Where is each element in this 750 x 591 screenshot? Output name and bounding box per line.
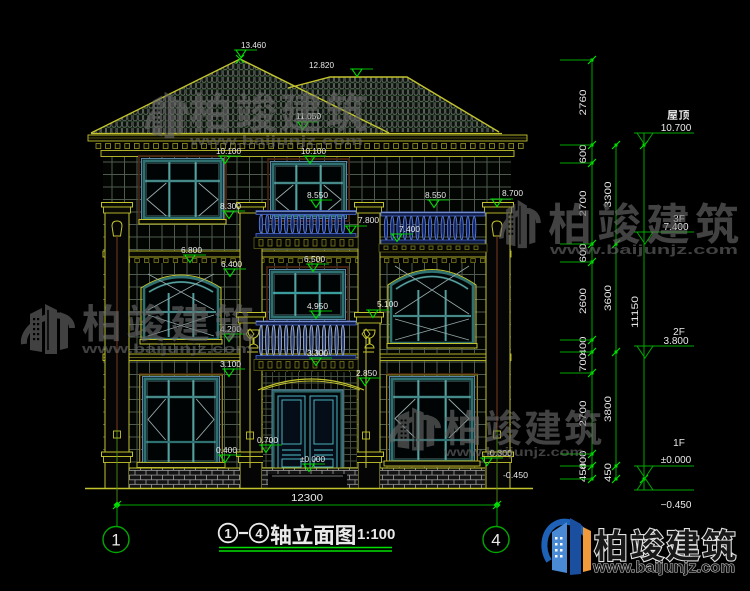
svg-text:2760: 2760 — [578, 90, 588, 116]
svg-text:400: 400 — [578, 337, 588, 356]
svg-text:www.baijunjz.com: www.baijunjz.com — [443, 445, 584, 459]
svg-text:2600: 2600 — [578, 288, 588, 314]
svg-text:6.800: 6.800 — [181, 245, 202, 255]
svg-text:1F: 1F — [673, 438, 685, 449]
svg-text:3800: 3800 — [603, 396, 613, 422]
svg-text:3300: 3300 — [603, 182, 613, 208]
svg-text:1:100: 1:100 — [357, 526, 395, 543]
svg-text:6.500: 6.500 — [304, 254, 325, 264]
svg-text:3.300: 3.300 — [307, 348, 328, 358]
svg-text:0.400: 0.400 — [216, 445, 237, 455]
svg-text:700: 700 — [578, 353, 588, 372]
svg-text:12.820: 12.820 — [309, 60, 334, 70]
svg-text:±0.000: ±0.000 — [300, 454, 325, 464]
svg-text:8.300: 8.300 — [220, 201, 241, 211]
svg-text:6.400: 6.400 — [221, 259, 242, 269]
svg-text:8.700: 8.700 — [502, 188, 523, 198]
svg-text:−0.450: −0.450 — [661, 500, 692, 511]
svg-text:4: 4 — [255, 526, 263, 541]
svg-text:www.baijunjz.com: www.baijunjz.com — [548, 242, 738, 257]
svg-text:4: 4 — [491, 531, 500, 550]
svg-text:7.800: 7.800 — [358, 215, 379, 225]
svg-text:3600: 3600 — [603, 285, 613, 311]
svg-text:www.baijunjz.com: www.baijunjz.com — [592, 559, 735, 576]
svg-text:2.850: 2.850 — [356, 368, 377, 378]
svg-text:10.700: 10.700 — [661, 123, 692, 134]
svg-text:12300: 12300 — [291, 493, 323, 504]
svg-text:11150: 11150 — [630, 296, 640, 328]
svg-text:8.550: 8.550 — [425, 190, 446, 200]
svg-text:3.800: 3.800 — [663, 336, 688, 347]
svg-text:450: 450 — [603, 463, 613, 482]
svg-text:0.700: 0.700 — [257, 435, 278, 445]
svg-text:5.100: 5.100 — [377, 299, 398, 309]
svg-text:www.baijunjz.com: www.baijunjz.com — [188, 133, 363, 148]
svg-text:1: 1 — [224, 526, 231, 541]
svg-text:3.100: 3.100 — [220, 359, 241, 369]
svg-text:-0.450: -0.450 — [503, 470, 528, 480]
svg-text:www.baijunjz.com: www.baijunjz.com — [80, 341, 253, 356]
svg-text:13.460: 13.460 — [241, 40, 266, 50]
svg-text:8.550: 8.550 — [307, 190, 328, 200]
svg-text:4.950: 4.950 — [307, 301, 328, 311]
svg-text:1: 1 — [111, 531, 120, 550]
svg-text:±0.000: ±0.000 — [661, 455, 692, 466]
svg-text:600: 600 — [578, 145, 588, 164]
svg-text:7.400: 7.400 — [399, 224, 420, 234]
